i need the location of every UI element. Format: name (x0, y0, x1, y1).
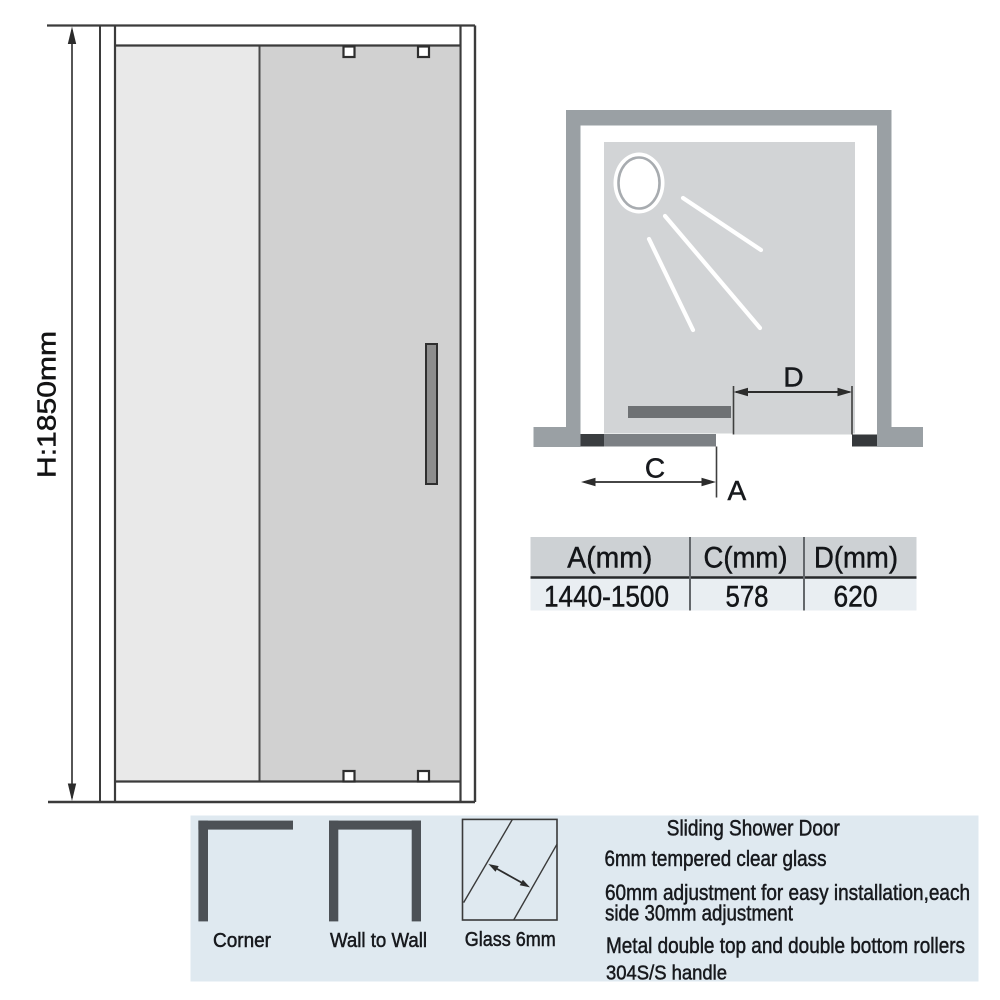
svg-text:D(mm): D(mm) (814, 542, 898, 575)
svg-text:578: 578 (726, 581, 769, 614)
svg-text:1440-1500: 1440-1500 (544, 581, 669, 614)
svg-text:Corner: Corner (213, 930, 271, 952)
svg-text:Glass 6mm: Glass 6mm (465, 929, 556, 951)
svg-text:A(mm): A(mm) (567, 542, 652, 575)
svg-text:304S/S handle: 304S/S handle (606, 962, 727, 985)
svg-text:A: A (728, 475, 747, 506)
svg-text:side 30mm adjustment: side 30mm adjustment (605, 900, 793, 925)
svg-text:Wall to Wall: Wall to Wall (330, 930, 427, 952)
svg-text:6mm tempered clear glass: 6mm tempered clear glass (605, 846, 827, 871)
svg-text:C: C (645, 453, 665, 484)
svg-text:C(mm): C(mm) (704, 542, 788, 575)
svg-text:620: 620 (834, 581, 878, 614)
svg-text:Sliding Shower Door: Sliding Shower Door (667, 816, 840, 841)
svg-text:H:1850mm: H:1850mm (32, 331, 62, 478)
svg-text:Metal double top and double bo: Metal double top and double bottom rolle… (606, 933, 965, 958)
svg-text:D: D (783, 362, 803, 393)
